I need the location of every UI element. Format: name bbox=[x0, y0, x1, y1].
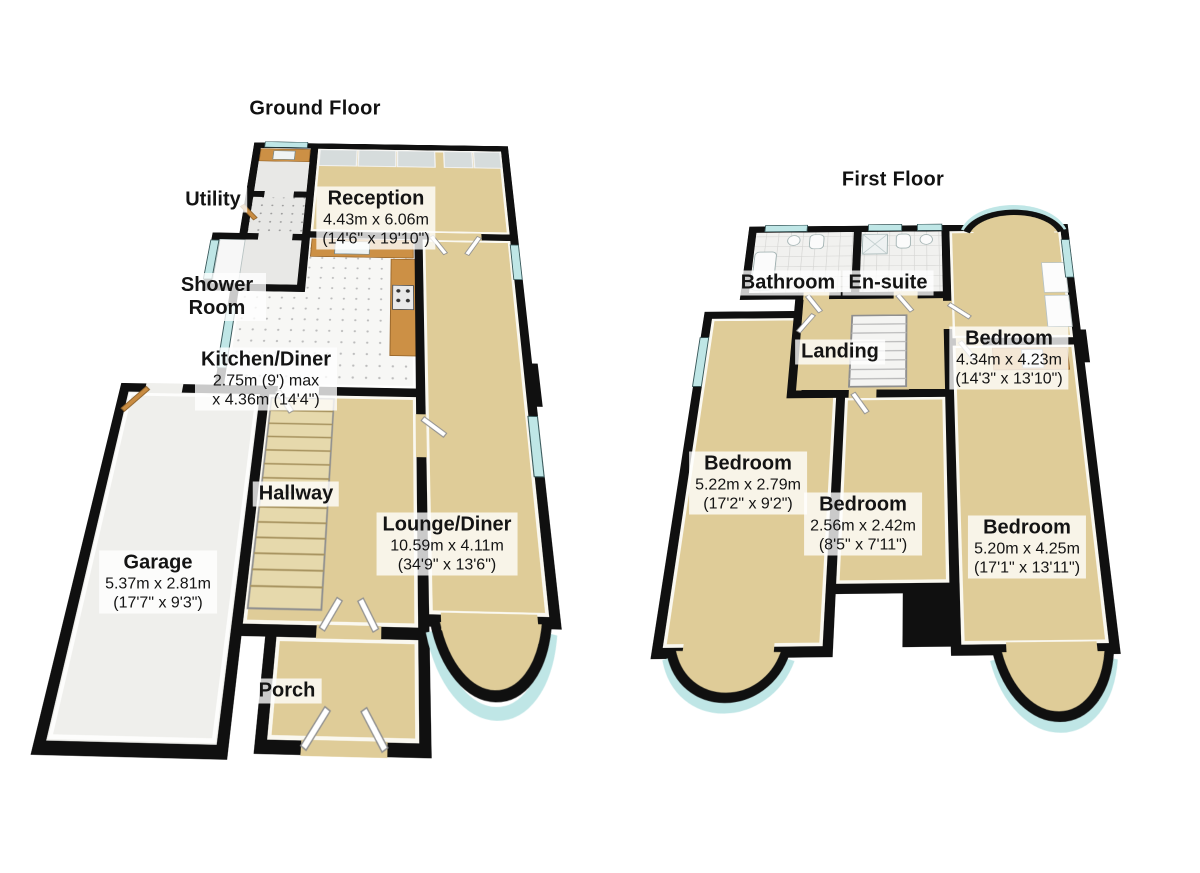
room-dims-metric: 10.59m x 4.11m bbox=[383, 537, 512, 556]
room-dims-imperial: (17'1" x 13'11") bbox=[974, 559, 1080, 578]
room-dims-metric: 2.75m (9') max bbox=[201, 372, 331, 391]
room-label-shower-room: Shower Room bbox=[168, 273, 266, 321]
room-label-bedroom-front: Bedroom 5.20m x 4.25m (17'1" x 13'11") bbox=[968, 516, 1086, 579]
room-name: Garage bbox=[105, 552, 211, 575]
room-dims-imperial: (14'3" x 13'10") bbox=[955, 370, 1062, 389]
room-dims-metric: 5.22m x 2.79m bbox=[695, 476, 801, 495]
room-label-hallway: Hallway bbox=[253, 482, 339, 507]
room-name: Bedroom bbox=[974, 517, 1080, 540]
room-name: Utility bbox=[185, 189, 241, 212]
room-dims-imperial: (17'2" x 9'2") bbox=[695, 495, 801, 514]
room-name: Porch bbox=[259, 680, 316, 703]
room-label-garage: Garage 5.37m x 2.81m (17'7" x 9'3") bbox=[99, 551, 217, 614]
room-name: Hallway bbox=[259, 483, 333, 506]
room-dims-imperial: (14'6" x 19'10") bbox=[322, 230, 429, 249]
room-dims-metric: 5.37m x 2.81m bbox=[105, 575, 211, 594]
room-name: Bedroom bbox=[955, 328, 1062, 351]
room-label-bedroom-rear: Bedroom 4.34m x 4.23m (14'3" x 13'10") bbox=[949, 327, 1068, 390]
room-dims-metric: 2.56m x 2.42m bbox=[810, 517, 916, 536]
room-name: En-suite bbox=[849, 272, 928, 295]
room-dims-imperial: x 4.36m (14'4") bbox=[201, 391, 331, 410]
room-label-kitchen-diner: Kitchen/Diner 2.75m (9') max x 4.36m (14… bbox=[195, 348, 337, 411]
room-dims-imperial: (8'5" x 7'11") bbox=[810, 536, 916, 555]
room-label-utility: Utility bbox=[179, 188, 247, 213]
room-name: Shower Room bbox=[170, 274, 264, 320]
room-label-bedroom-left: Bedroom 5.22m x 2.79m (17'2" x 9'2") bbox=[689, 452, 807, 515]
room-label-porch: Porch bbox=[253, 679, 322, 704]
room-label-bathroom: Bathroom bbox=[735, 271, 841, 296]
room-dims-metric: 4.34m x 4.23m bbox=[955, 351, 1062, 370]
labels-layer: Ground Floor First Floor Utility Recepti… bbox=[0, 0, 1200, 873]
room-name: Bathroom bbox=[741, 272, 835, 295]
room-name: Bedroom bbox=[810, 494, 916, 517]
room-label-bedroom-middle: Bedroom 2.56m x 2.42m (8'5" x 7'11") bbox=[804, 493, 922, 556]
room-label-landing: Landing bbox=[795, 340, 885, 365]
room-label-ensuite: En-suite bbox=[843, 271, 934, 296]
room-name: Kitchen/Diner bbox=[201, 349, 331, 372]
room-name: Bedroom bbox=[695, 453, 801, 476]
room-name: Lounge/Diner bbox=[383, 514, 512, 537]
room-dims-metric: 4.43m x 6.06m bbox=[322, 211, 429, 230]
ground-floor-title: Ground Floor bbox=[249, 98, 380, 121]
room-label-reception: Reception 4.43m x 6.06m (14'6" x 19'10") bbox=[316, 187, 435, 250]
room-dims-metric: 5.20m x 4.25m bbox=[974, 540, 1080, 559]
room-name: Landing bbox=[801, 341, 879, 364]
room-dims-imperial: (17'7" x 9'3") bbox=[105, 594, 211, 613]
floorplan-page: Ground Floor First Floor Utility Recepti… bbox=[0, 0, 1200, 873]
room-label-lounge-diner: Lounge/Diner 10.59m x 4.11m (34'9" x 13'… bbox=[377, 513, 518, 576]
first-floor-title: First Floor bbox=[842, 169, 944, 192]
room-name: Reception bbox=[322, 188, 429, 211]
room-dims-imperial: (34'9" x 13'6") bbox=[383, 556, 512, 575]
